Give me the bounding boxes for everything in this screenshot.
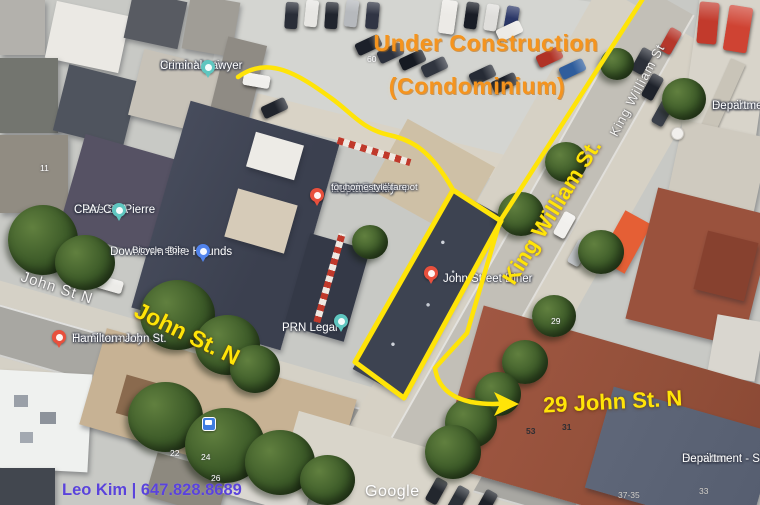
tree	[300, 455, 355, 505]
transit-stop-icon[interactable]	[202, 417, 216, 431]
lot-number: 31	[562, 422, 571, 432]
tree	[662, 78, 706, 120]
legal-pin-icon[interactable]	[334, 314, 348, 328]
parked-car	[324, 2, 339, 30]
bike-shop-pin-icon[interactable]	[196, 244, 210, 258]
poi-name: Hamilton- John St.	[72, 333, 167, 346]
bus-glyph	[205, 420, 212, 425]
fire-truck	[696, 1, 720, 45]
poi-category: Bicycle store	[132, 246, 186, 257]
poi-name: PRN Legal	[282, 322, 338, 335]
diner-pin-icon[interactable]	[424, 266, 438, 280]
lot-number: 37-35	[618, 490, 640, 500]
lot-number: 29	[551, 316, 560, 326]
rooftop-unit	[20, 432, 33, 443]
lot-number: 33	[699, 486, 708, 496]
tree	[578, 230, 624, 274]
lot-number: 24	[201, 452, 210, 462]
tree	[600, 48, 634, 80]
under-construction-label-line1: Under Construction	[374, 30, 599, 57]
accountant-pin-icon[interactable]	[112, 203, 126, 217]
poi-name: Department - Fire...	[712, 100, 760, 113]
poi-description: for homestyle fare	[331, 183, 407, 194]
under-construction-label-line2: (Condominium)	[389, 73, 565, 100]
lot-number: 22	[170, 448, 179, 458]
tree	[352, 225, 388, 259]
rooftop-unit	[14, 395, 28, 407]
building	[0, 0, 45, 55]
rooftop-unit	[40, 412, 56, 424]
agent-contact-label: Leo Kim | 647.828.8689	[62, 481, 242, 500]
lawyer-pin-icon[interactable]	[201, 60, 215, 74]
pharmacy-pin-icon[interactable]	[52, 330, 66, 344]
building	[124, 0, 188, 49]
lot-number: 11	[40, 163, 49, 173]
restaurant-pin-icon[interactable]	[310, 188, 324, 202]
poi-label-bike-hounds[interactable]: Downtown Bike Hounds Bicycle store	[110, 246, 164, 257]
parked-car	[365, 1, 380, 29]
lot-number: 53	[526, 426, 535, 436]
google-watermark: Google	[365, 483, 420, 501]
building	[0, 135, 68, 213]
building	[0, 58, 58, 133]
annotated-satellite-map: Derek Martin Criminal Lawyer Claire St. …	[0, 0, 760, 505]
fire-dept-poi-icon[interactable]	[671, 127, 684, 140]
building	[0, 468, 55, 505]
poi-name: Department - St...	[682, 453, 760, 466]
tree	[425, 425, 481, 479]
parked-car	[284, 2, 299, 30]
